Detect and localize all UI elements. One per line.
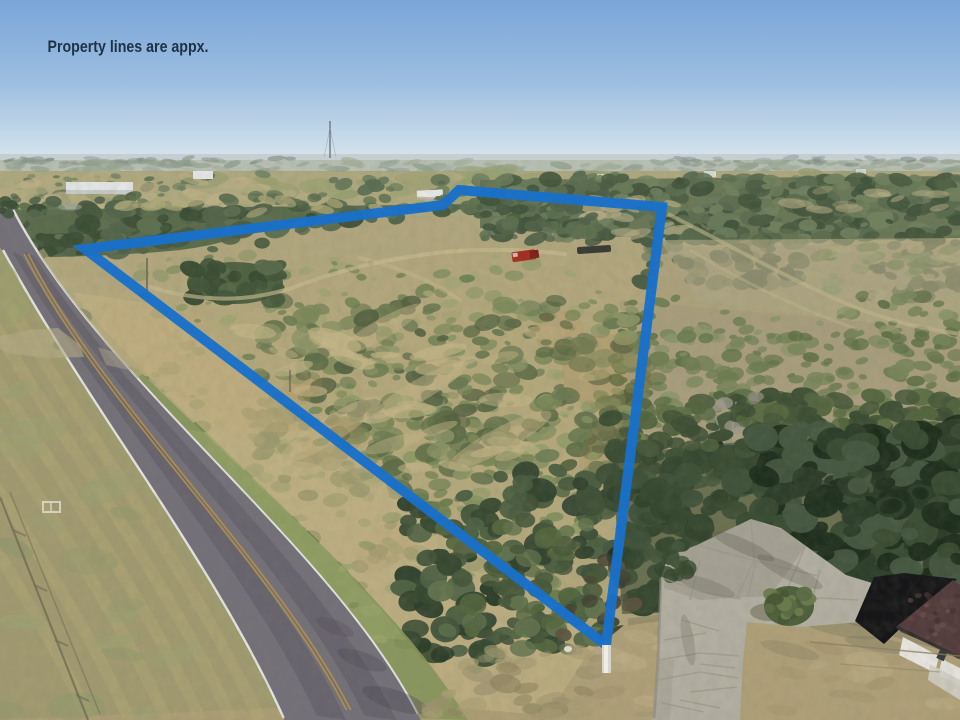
svg-text:Property lines are appx.: Property lines are appx. [48,37,209,56]
